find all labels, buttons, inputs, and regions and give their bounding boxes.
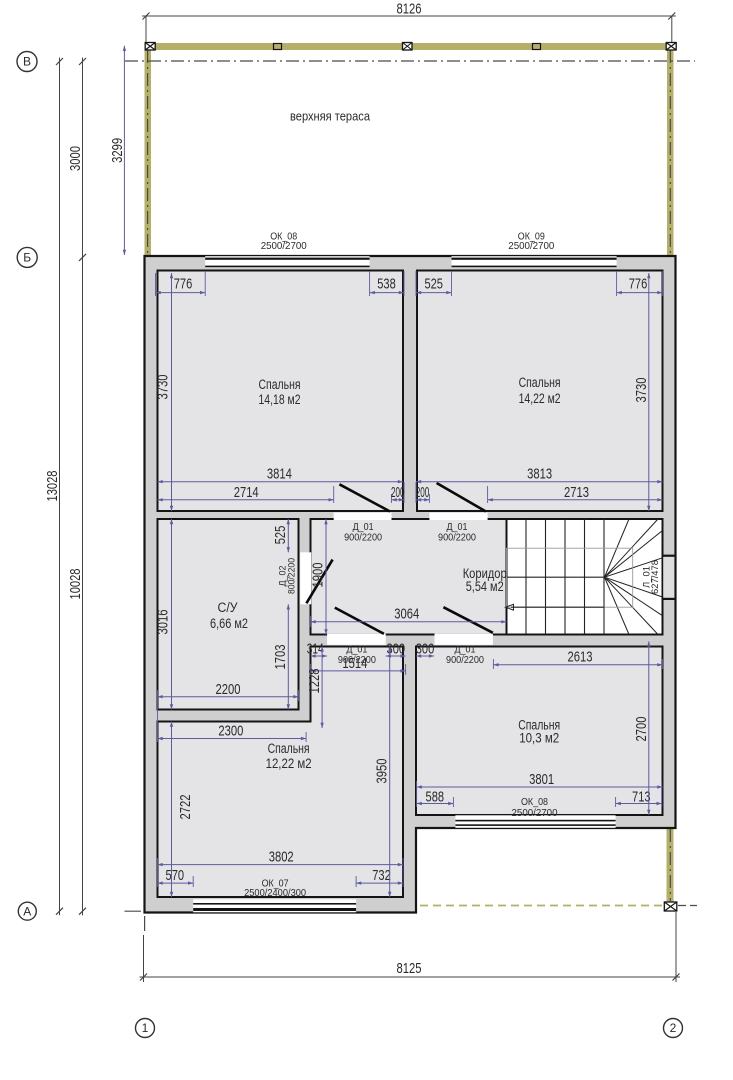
svg-text:3801: 3801 xyxy=(529,771,554,788)
svg-text:Спальня: Спальня xyxy=(259,377,301,392)
svg-text:10,3 м2: 10,3 м2 xyxy=(519,731,559,746)
svg-text:5,54 м2: 5,54 м2 xyxy=(466,579,504,594)
svg-text:ОК_08: ОК_08 xyxy=(521,797,548,808)
svg-text:3064: 3064 xyxy=(394,606,419,623)
svg-text:900/2200: 900/2200 xyxy=(446,655,484,666)
svg-text:800/2200: 800/2200 xyxy=(286,558,297,594)
svg-text:3730: 3730 xyxy=(154,375,171,400)
svg-text:588: 588 xyxy=(426,788,445,805)
svg-text:900/2200: 900/2200 xyxy=(344,533,382,544)
svg-text:6,66 м2: 6,66 м2 xyxy=(210,616,248,631)
svg-text:570: 570 xyxy=(166,867,185,884)
svg-text:1703: 1703 xyxy=(272,645,289,670)
svg-text:2700: 2700 xyxy=(633,717,650,742)
svg-text:2500/2700: 2500/2700 xyxy=(261,241,307,252)
svg-text:525: 525 xyxy=(424,276,443,293)
svg-text:3813: 3813 xyxy=(527,466,552,483)
svg-text:2500/2700: 2500/2700 xyxy=(508,241,554,252)
svg-text:8126: 8126 xyxy=(397,1,422,18)
svg-text:300: 300 xyxy=(416,641,435,658)
svg-text:12,22 м2: 12,22 м2 xyxy=(266,756,312,771)
svg-text:1: 1 xyxy=(142,1021,149,1035)
svg-text:2500/2700: 2500/2700 xyxy=(512,808,558,819)
svg-text:Спальня: Спальня xyxy=(268,741,310,756)
svg-text:1228: 1228 xyxy=(306,669,323,694)
svg-text:3814: 3814 xyxy=(267,466,292,483)
svg-text:13028: 13028 xyxy=(44,471,61,502)
svg-text:2300: 2300 xyxy=(218,723,243,740)
svg-text:627/478: 627/478 xyxy=(650,560,661,594)
svg-text:Д_01: Д_01 xyxy=(447,522,468,533)
svg-text:2500/2400/300: 2500/2400/300 xyxy=(244,888,306,899)
svg-text:2613: 2613 xyxy=(568,649,593,666)
svg-text:С/У: С/У xyxy=(218,600,238,615)
svg-text:732: 732 xyxy=(372,867,391,884)
svg-text:2: 2 xyxy=(670,1021,677,1035)
svg-text:1900: 1900 xyxy=(309,563,326,588)
svg-text:14,22 м2: 14,22 м2 xyxy=(519,391,561,406)
svg-text:А: А xyxy=(23,904,31,918)
svg-text:Д_01: Д_01 xyxy=(346,645,367,656)
svg-text:2722: 2722 xyxy=(177,795,194,820)
svg-text:3950: 3950 xyxy=(373,759,390,784)
svg-text:776: 776 xyxy=(629,276,648,293)
svg-text:776: 776 xyxy=(174,276,193,293)
svg-text:В: В xyxy=(23,55,31,69)
svg-text:8125: 8125 xyxy=(397,960,422,977)
svg-text:900/2200: 900/2200 xyxy=(438,533,476,544)
svg-text:3016: 3016 xyxy=(154,610,171,635)
svg-text:900/2200: 900/2200 xyxy=(338,655,376,666)
svg-text:верхняя тераса: верхняя тераса xyxy=(290,109,371,124)
svg-text:200: 200 xyxy=(416,484,430,501)
svg-text:314: 314 xyxy=(307,641,324,658)
svg-text:10028: 10028 xyxy=(67,569,84,600)
svg-text:Спальня: Спальня xyxy=(519,375,561,390)
svg-text:2200: 2200 xyxy=(216,681,241,698)
svg-text:200: 200 xyxy=(391,484,405,501)
svg-text:538: 538 xyxy=(377,276,396,293)
svg-text:3730: 3730 xyxy=(633,378,650,403)
svg-text:3299: 3299 xyxy=(109,138,126,163)
svg-text:Д_01: Д_01 xyxy=(455,645,476,656)
svg-text:713: 713 xyxy=(632,788,651,805)
svg-text:3000: 3000 xyxy=(67,146,84,171)
svg-text:2714: 2714 xyxy=(234,484,259,501)
svg-text:14,18 м2: 14,18 м2 xyxy=(259,392,301,407)
svg-text:525: 525 xyxy=(272,526,289,545)
svg-text:Б: Б xyxy=(23,251,31,265)
svg-text:Д_01: Д_01 xyxy=(353,522,374,533)
svg-text:2713: 2713 xyxy=(564,484,589,501)
svg-text:3802: 3802 xyxy=(269,849,294,866)
